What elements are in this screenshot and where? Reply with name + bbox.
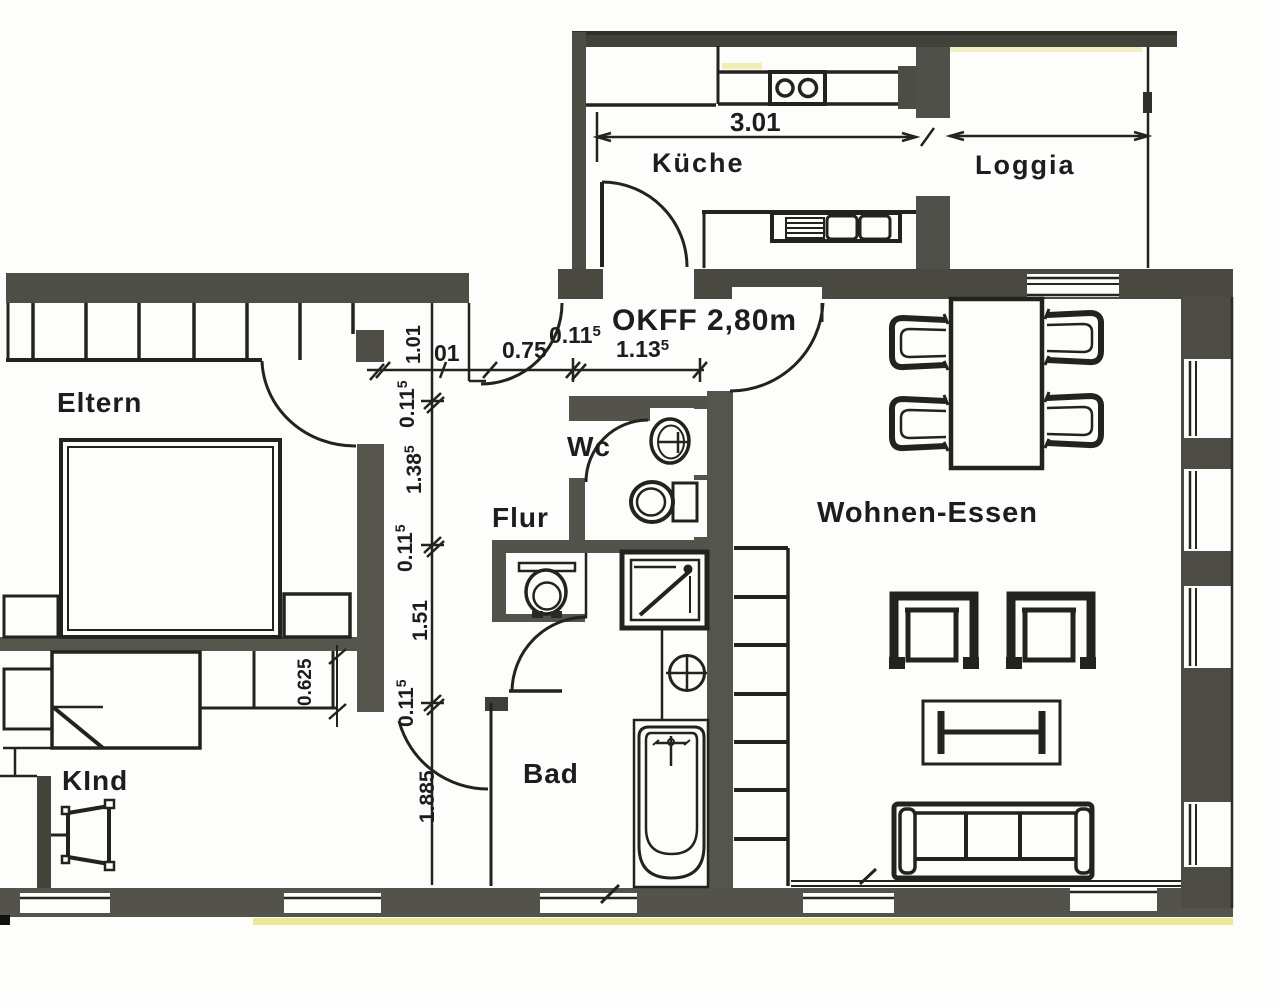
svg-text:OKFF 2,80m: OKFF 2,80m <box>612 304 797 337</box>
svg-text:Bad: Bad <box>523 758 579 789</box>
svg-text:0.115: 0.115 <box>393 679 418 727</box>
svg-text:1.385: 1.385 <box>401 445 426 494</box>
svg-text:Wc: Wc <box>567 431 611 462</box>
svg-text:Loggia: Loggia <box>975 150 1076 180</box>
svg-text:KInd: KInd <box>62 765 128 796</box>
svg-text:1.135: 1.135 <box>616 336 669 362</box>
svg-text:Flur: Flur <box>492 502 549 533</box>
svg-text:1.885: 1.885 <box>416 770 439 823</box>
svg-text:Küche: Küche <box>652 148 745 178</box>
svg-text:0.115: 0.115 <box>549 322 601 348</box>
svg-text:1.51: 1.51 <box>409 600 432 641</box>
svg-text:0.75: 0.75 <box>502 337 547 363</box>
svg-text:0.115: 0.115 <box>394 380 419 428</box>
svg-text:0.625: 0.625 <box>295 658 316 706</box>
svg-text:Eltern: Eltern <box>57 387 142 418</box>
svg-text:Wohnen-Essen: Wohnen-Essen <box>817 497 1038 529</box>
svg-text:3.01: 3.01 <box>730 107 781 137</box>
svg-text:1.01: 1.01 <box>403 325 425 364</box>
svg-text:01: 01 <box>434 340 460 366</box>
svg-text:0.115: 0.115 <box>392 524 417 572</box>
